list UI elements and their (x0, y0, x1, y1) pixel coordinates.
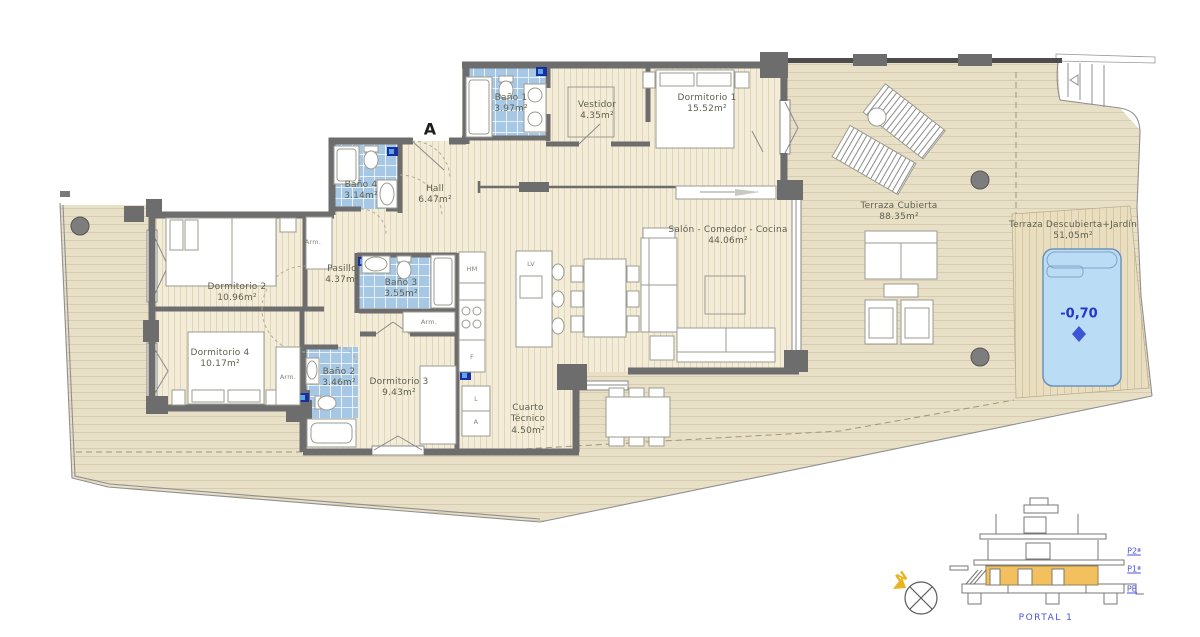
armario-label-dorm2: Arm. (305, 238, 321, 246)
section-floor-p1: P1ª (1127, 565, 1141, 574)
room-label-dormitorio-3: Dormitorio 39.43m² (370, 377, 429, 400)
dishwasher-label: LV (527, 260, 535, 268)
room-label-dormitorio-1: Dormitorio 115.52m² (678, 93, 737, 116)
fridge-label: F (470, 353, 474, 361)
section-floor-p2: P2ª (1127, 547, 1141, 556)
room-label-terraza-cubierta: Terraza Cubierta88.35m² (860, 201, 937, 224)
building-section (950, 498, 1144, 604)
floor-plan-drawing (0, 0, 1200, 637)
section-ground-floor-highlight (986, 566, 1098, 585)
boiler-label: A (474, 418, 479, 426)
room-label-vestidor: Vestidor4.35m² (578, 100, 616, 123)
room-label-terraza-descubierta: Terraza Descubierta+Jardín51,05m² (988, 220, 1158, 243)
room-label-banio-2: Baño 23.46m² (322, 367, 356, 390)
armario-label-banio3: Arm. (421, 318, 437, 326)
armario-label-dorm4: Arm. (280, 373, 296, 381)
washer-label: L (474, 395, 478, 403)
floor-plan-page: Baño 13.97m² Vestidor4.35m² Dormitorio 1… (0, 0, 1200, 637)
oven-microwave-label: HM (467, 265, 478, 273)
entrance-marker-a: A (424, 120, 436, 139)
room-label-salon-comedor-cocina: Salón - Comedor - Cocina44.06m² (668, 225, 787, 248)
exterior-stairs (1068, 63, 1104, 107)
room-label-banio-1: Baño 13.97m² (494, 93, 528, 116)
room-label-dormitorio-2: Dormitorio 210.96m² (208, 282, 267, 305)
section-floor-pb: PB (1127, 585, 1137, 594)
room-label-cuarto-tecnico: Cuarto Técnico4.50m² (498, 403, 558, 437)
room-label-banio-4: Baño 43.14m² (344, 180, 378, 203)
room-label-pasillo: Pasillo4.37m² (325, 264, 359, 287)
portal-label: PORTAL 1 (1019, 613, 1074, 623)
pool-depth-label: -0,70 (1060, 307, 1097, 322)
room-label-banio-3: Baño 33.55m² (384, 278, 418, 301)
room-label-dormitorio-4: Dormitorio 410.17m² (191, 348, 250, 371)
room-label-hall: Hall6.47m² (418, 184, 452, 207)
